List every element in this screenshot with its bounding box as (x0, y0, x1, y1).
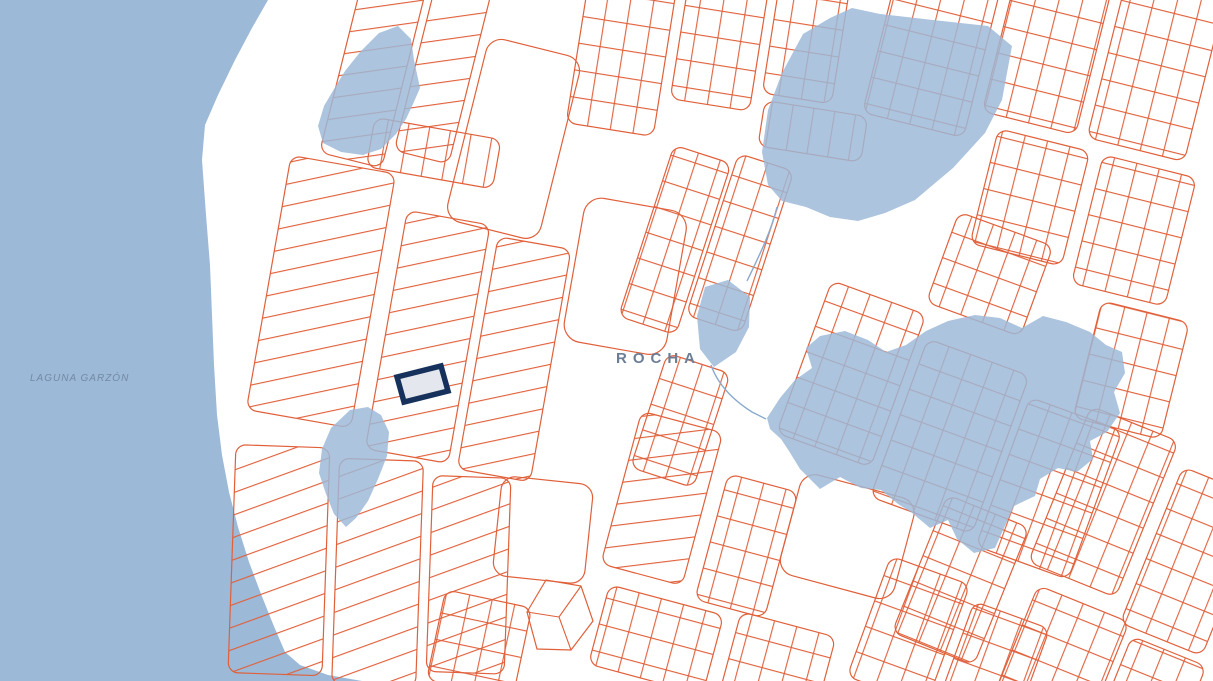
pond-center (697, 280, 750, 367)
label-laguna-garzon: LAGUNA GARZÓN (30, 371, 129, 384)
pentagon-block (527, 580, 593, 650)
label-rocha: ROCHA (616, 350, 701, 367)
map-canvas[interactable]: LAGUNA GARZÓN ROCHA (0, 0, 1213, 681)
map-viewport[interactable]: LAGUNA GARZÓN ROCHA (0, 0, 1213, 681)
